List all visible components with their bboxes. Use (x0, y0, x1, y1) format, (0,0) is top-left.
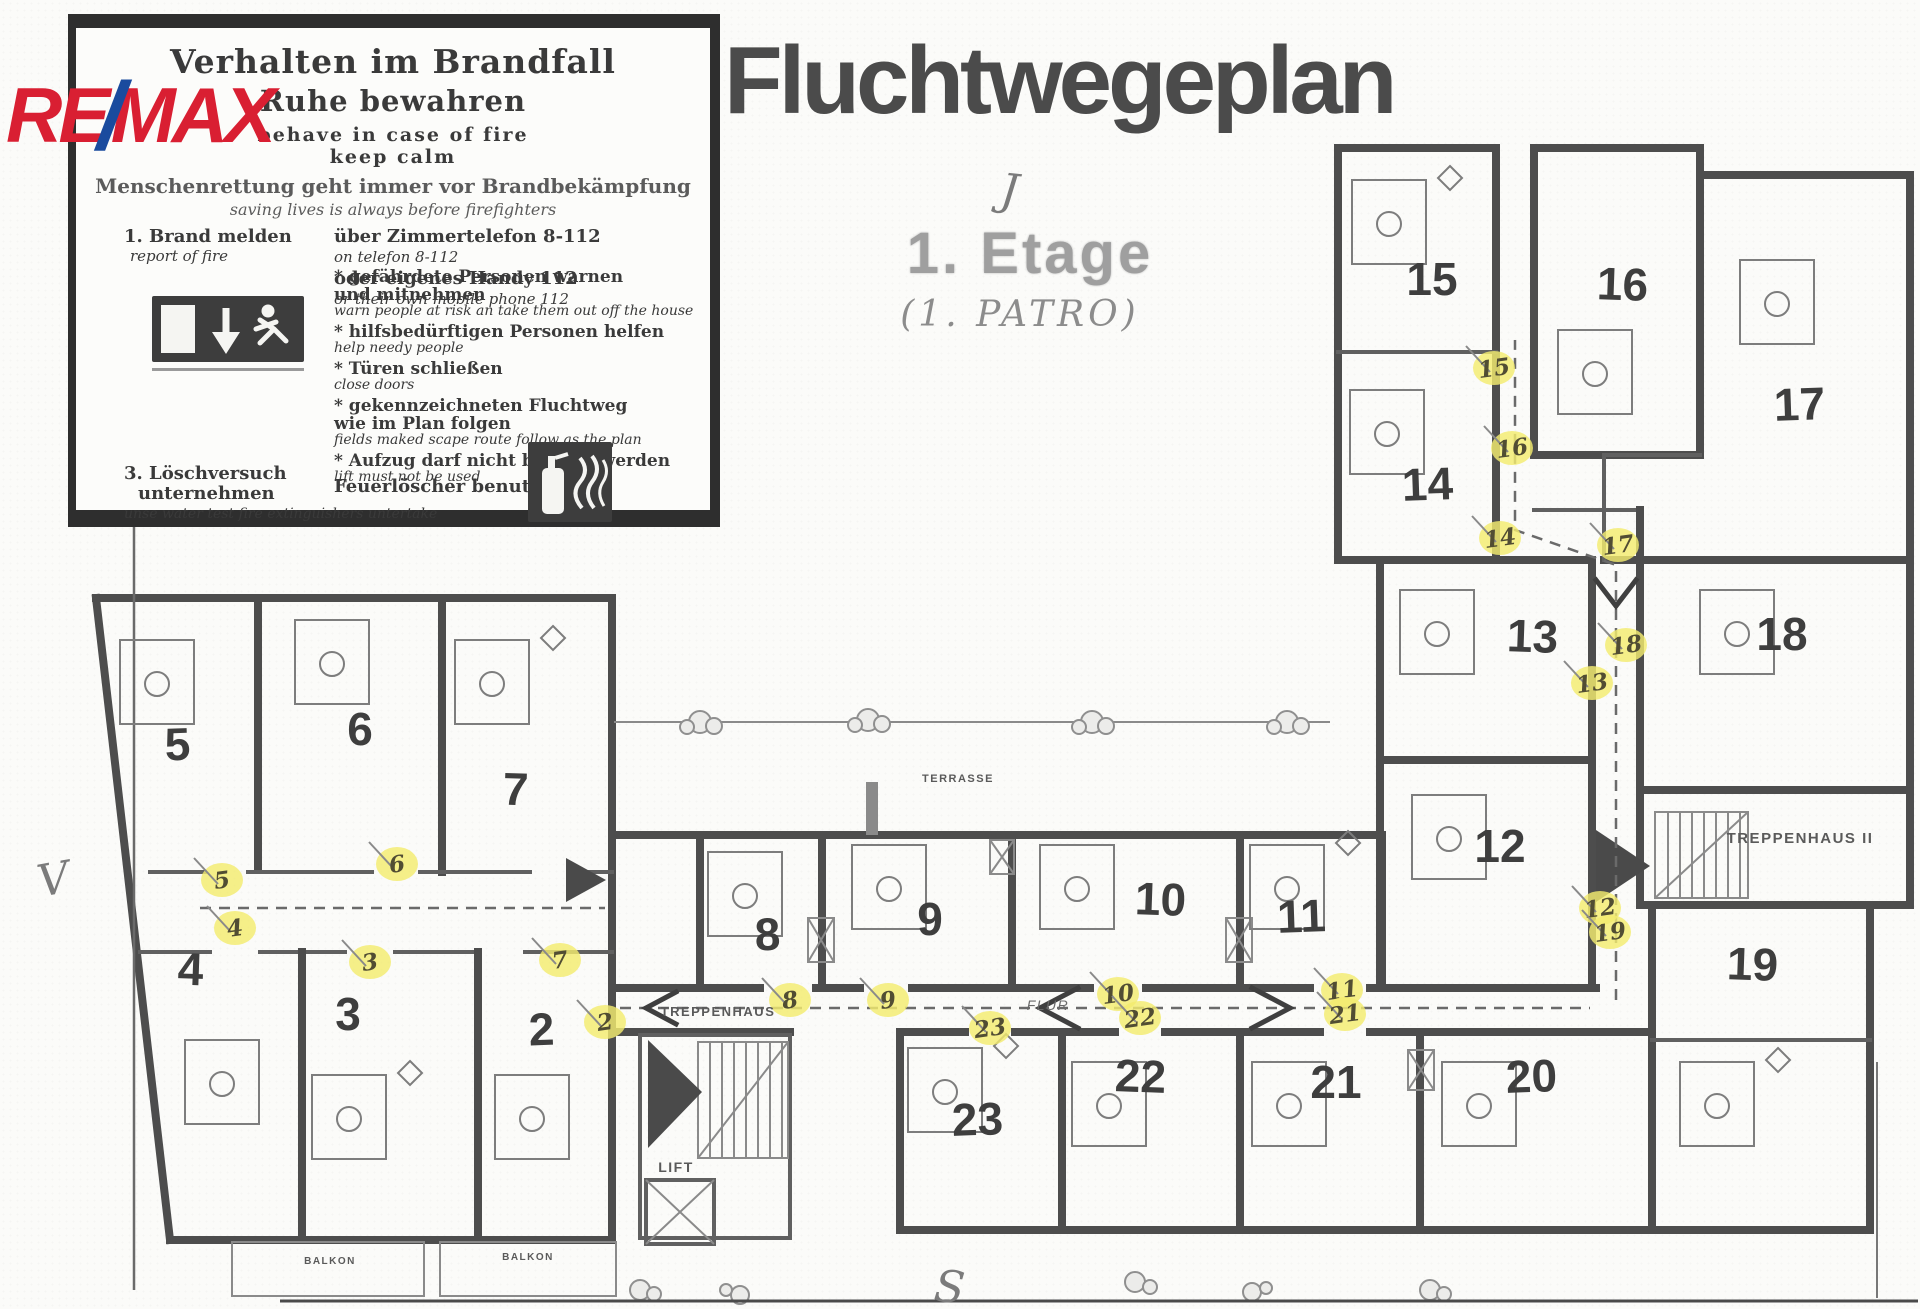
principle-de: Menschenrettung geht immer vor Brandbekä… (76, 174, 710, 198)
room-number-12: 12 (1474, 820, 1525, 872)
stair-diagonal (698, 1042, 788, 1158)
furniture-detail (733, 884, 757, 908)
bed-outline (1680, 1062, 1754, 1146)
room-number-6: 6 (347, 703, 373, 755)
lift-shaft (646, 1180, 714, 1244)
furniture-detail (877, 877, 901, 901)
bullet-de: * hilfsbedürftigen Personen helfen (334, 323, 734, 341)
bed-outline (852, 845, 926, 929)
diamond-decor (541, 626, 565, 650)
route-marker-number-13: 13 (1574, 668, 1609, 699)
extinguisher-icon-background (528, 442, 612, 522)
plan-label-balkon: BALKON (304, 1256, 356, 1267)
balcony-outline (440, 1242, 616, 1296)
step3-de-line2: unternehmen (124, 484, 324, 504)
bed-outline (295, 620, 369, 704)
compass-letter-top: J (990, 163, 1023, 217)
route-marker-number-21: 21 (1326, 999, 1362, 1030)
plan-label-treppenhaus-ii: TREPPENHAUS II (1727, 830, 1874, 847)
furniture-detail (1065, 877, 1089, 901)
room-number-10: 10 (1134, 872, 1187, 926)
room-number-7: 7 (502, 763, 529, 816)
furniture-detail (1765, 292, 1789, 316)
logo-slash: / (97, 63, 119, 172)
furniture-detail (1467, 1094, 1491, 1118)
room-number-17: 17 (1773, 377, 1826, 431)
room-number-23: 23 (951, 1092, 1004, 1146)
room-number-4: 4 (177, 943, 205, 996)
exit-icon-caption-line (152, 368, 304, 371)
room-number-2: 2 (528, 1003, 555, 1056)
room-number-8: 8 (754, 908, 781, 961)
phone-de-1: über Zimmertelefon 8-112 (334, 226, 601, 247)
furniture-detail (520, 1107, 544, 1131)
furniture-detail (145, 672, 169, 696)
stair-steps (1668, 812, 1740, 898)
plan-label-balkon: BALKON (502, 1252, 554, 1263)
bed-outline (312, 1075, 386, 1159)
floor-stamp: 1. Etage (870, 220, 1190, 287)
phone-en-1: on telefon 8-112 (334, 247, 601, 268)
stair-steps (710, 1042, 782, 1158)
route-marker-number-19: 19 (1592, 917, 1627, 948)
escape-direction-wedge (566, 858, 606, 902)
route-marker-number-23: 23 (971, 1013, 1007, 1044)
route-marker-number-15: 15 (1476, 353, 1511, 384)
extinguisher-body (542, 468, 564, 514)
room-number-5: 5 (164, 718, 191, 771)
room-number-11: 11 (1276, 889, 1326, 943)
step3-de-line1: 3. Löschversuch (124, 464, 324, 484)
balconies (232, 1242, 1451, 1304)
furniture-detail (1725, 622, 1749, 646)
step1-de: 1. Brand melden (124, 226, 292, 247)
logo-max-text: MAX (111, 71, 272, 159)
room-block-12-13 (1380, 560, 1592, 988)
bed-outline (1040, 845, 1114, 929)
furniture-detail (1375, 422, 1399, 446)
plan-label-treppenhaus: TREPPENHAUS (661, 1004, 776, 1019)
remax-logo: RE/MAX (6, 56, 272, 165)
furniture-detail (1377, 212, 1401, 236)
room-number-22: 22 (1114, 1049, 1167, 1103)
room-number-19: 19 (1726, 937, 1779, 991)
bed-outline (120, 640, 194, 724)
scanned-escape-plan-page: { "logo": { "re": "RE", "slash": "/", "m… (0, 0, 1920, 1309)
step3-de: 3. Löschversuch unternehmen (124, 464, 324, 504)
furniture-detail (210, 1072, 234, 1096)
principle-en: saving lives is always before firefighte… (76, 200, 710, 219)
furniture-detail (1705, 1094, 1729, 1118)
fire-extinguisher-icon (528, 442, 612, 522)
exit-icon-door (161, 305, 195, 353)
lift-shaft-cross (646, 1180, 714, 1244)
plan-label-terrasse: TERRASSE (922, 773, 994, 785)
room-number-16: 16 (1596, 257, 1649, 311)
bed-outline (1352, 180, 1426, 264)
room-number-20: 20 (1505, 1049, 1558, 1103)
route-marker-number-14: 14 (1482, 523, 1517, 554)
page-title: Fluchtwegeplan (724, 26, 1393, 136)
furniture-detail (1425, 622, 1449, 646)
compass-letter-bottom: S (932, 1261, 967, 1309)
extinguisher-handle (548, 456, 555, 468)
room-number-21: 21 (1310, 1056, 1361, 1108)
bed-outline (455, 640, 529, 724)
route-marker-number-17: 17 (1600, 530, 1635, 561)
compass-letter-left: V (33, 851, 77, 907)
route-marker-number-16: 16 (1494, 433, 1529, 464)
bullet-de2: wie im Plan folgen (334, 415, 734, 433)
terrace (614, 709, 1330, 835)
furniture-detail (320, 652, 344, 676)
furniture-detail (1437, 827, 1461, 851)
bullet-en: warn people at risk an take them out off… (334, 304, 734, 319)
furniture-detail (480, 672, 504, 696)
route-marker-number-18: 18 (1608, 630, 1643, 661)
bullet-de: * gefährdete Personen warnen (334, 268, 734, 286)
balcony-outline (232, 1242, 424, 1296)
diamond-decor (398, 1061, 422, 1085)
plan-label-flur: FLUR (1027, 997, 1070, 1013)
bed-outline (1558, 330, 1632, 414)
plan-label-lift: LIFT (658, 1159, 694, 1175)
diamond-decor (1438, 166, 1462, 190)
bullet-de: * Türen schließen (334, 360, 734, 378)
room-17-walls (1604, 175, 1910, 560)
bullet-en: close doors (334, 378, 734, 393)
route-marker-number-22: 22 (1121, 1003, 1157, 1034)
bed-outline (1400, 590, 1474, 674)
step1-en: report of fire (130, 247, 228, 265)
bed-outline (1740, 260, 1814, 344)
room-number-18: 18 (1756, 608, 1807, 660)
escape-direction-wedge (648, 1040, 702, 1148)
step3-en: unse water test fire extinguishers unter… (124, 506, 454, 522)
emergency-exit-icon (152, 296, 304, 362)
bullet-de: * gekennzeichneten Fluchtweg (334, 397, 734, 415)
diamond-decor (1766, 1048, 1790, 1072)
stairwell-right (1596, 812, 1748, 902)
room-number-13: 13 (1506, 609, 1559, 663)
furniture-detail (337, 1107, 361, 1131)
furniture-detail (1277, 1094, 1301, 1118)
room-number-9: 9 (917, 893, 943, 945)
furniture-detail (1583, 362, 1607, 386)
garden-shrubs (630, 1272, 1451, 1304)
logo-re-text: RE (6, 71, 106, 159)
bed-outline (185, 1040, 259, 1124)
bullet-de2: und mitnehmen (334, 286, 734, 304)
room-number-14: 14 (1401, 457, 1454, 511)
terrace-pillar (866, 782, 878, 835)
floor-handwritten-note: (1. PATRO) (870, 294, 1170, 335)
room-number-15: 15 (1406, 253, 1457, 305)
bed-outline (495, 1075, 569, 1159)
room-number-3: 3 (335, 988, 361, 1040)
bullet-en: help needy people (334, 341, 734, 356)
